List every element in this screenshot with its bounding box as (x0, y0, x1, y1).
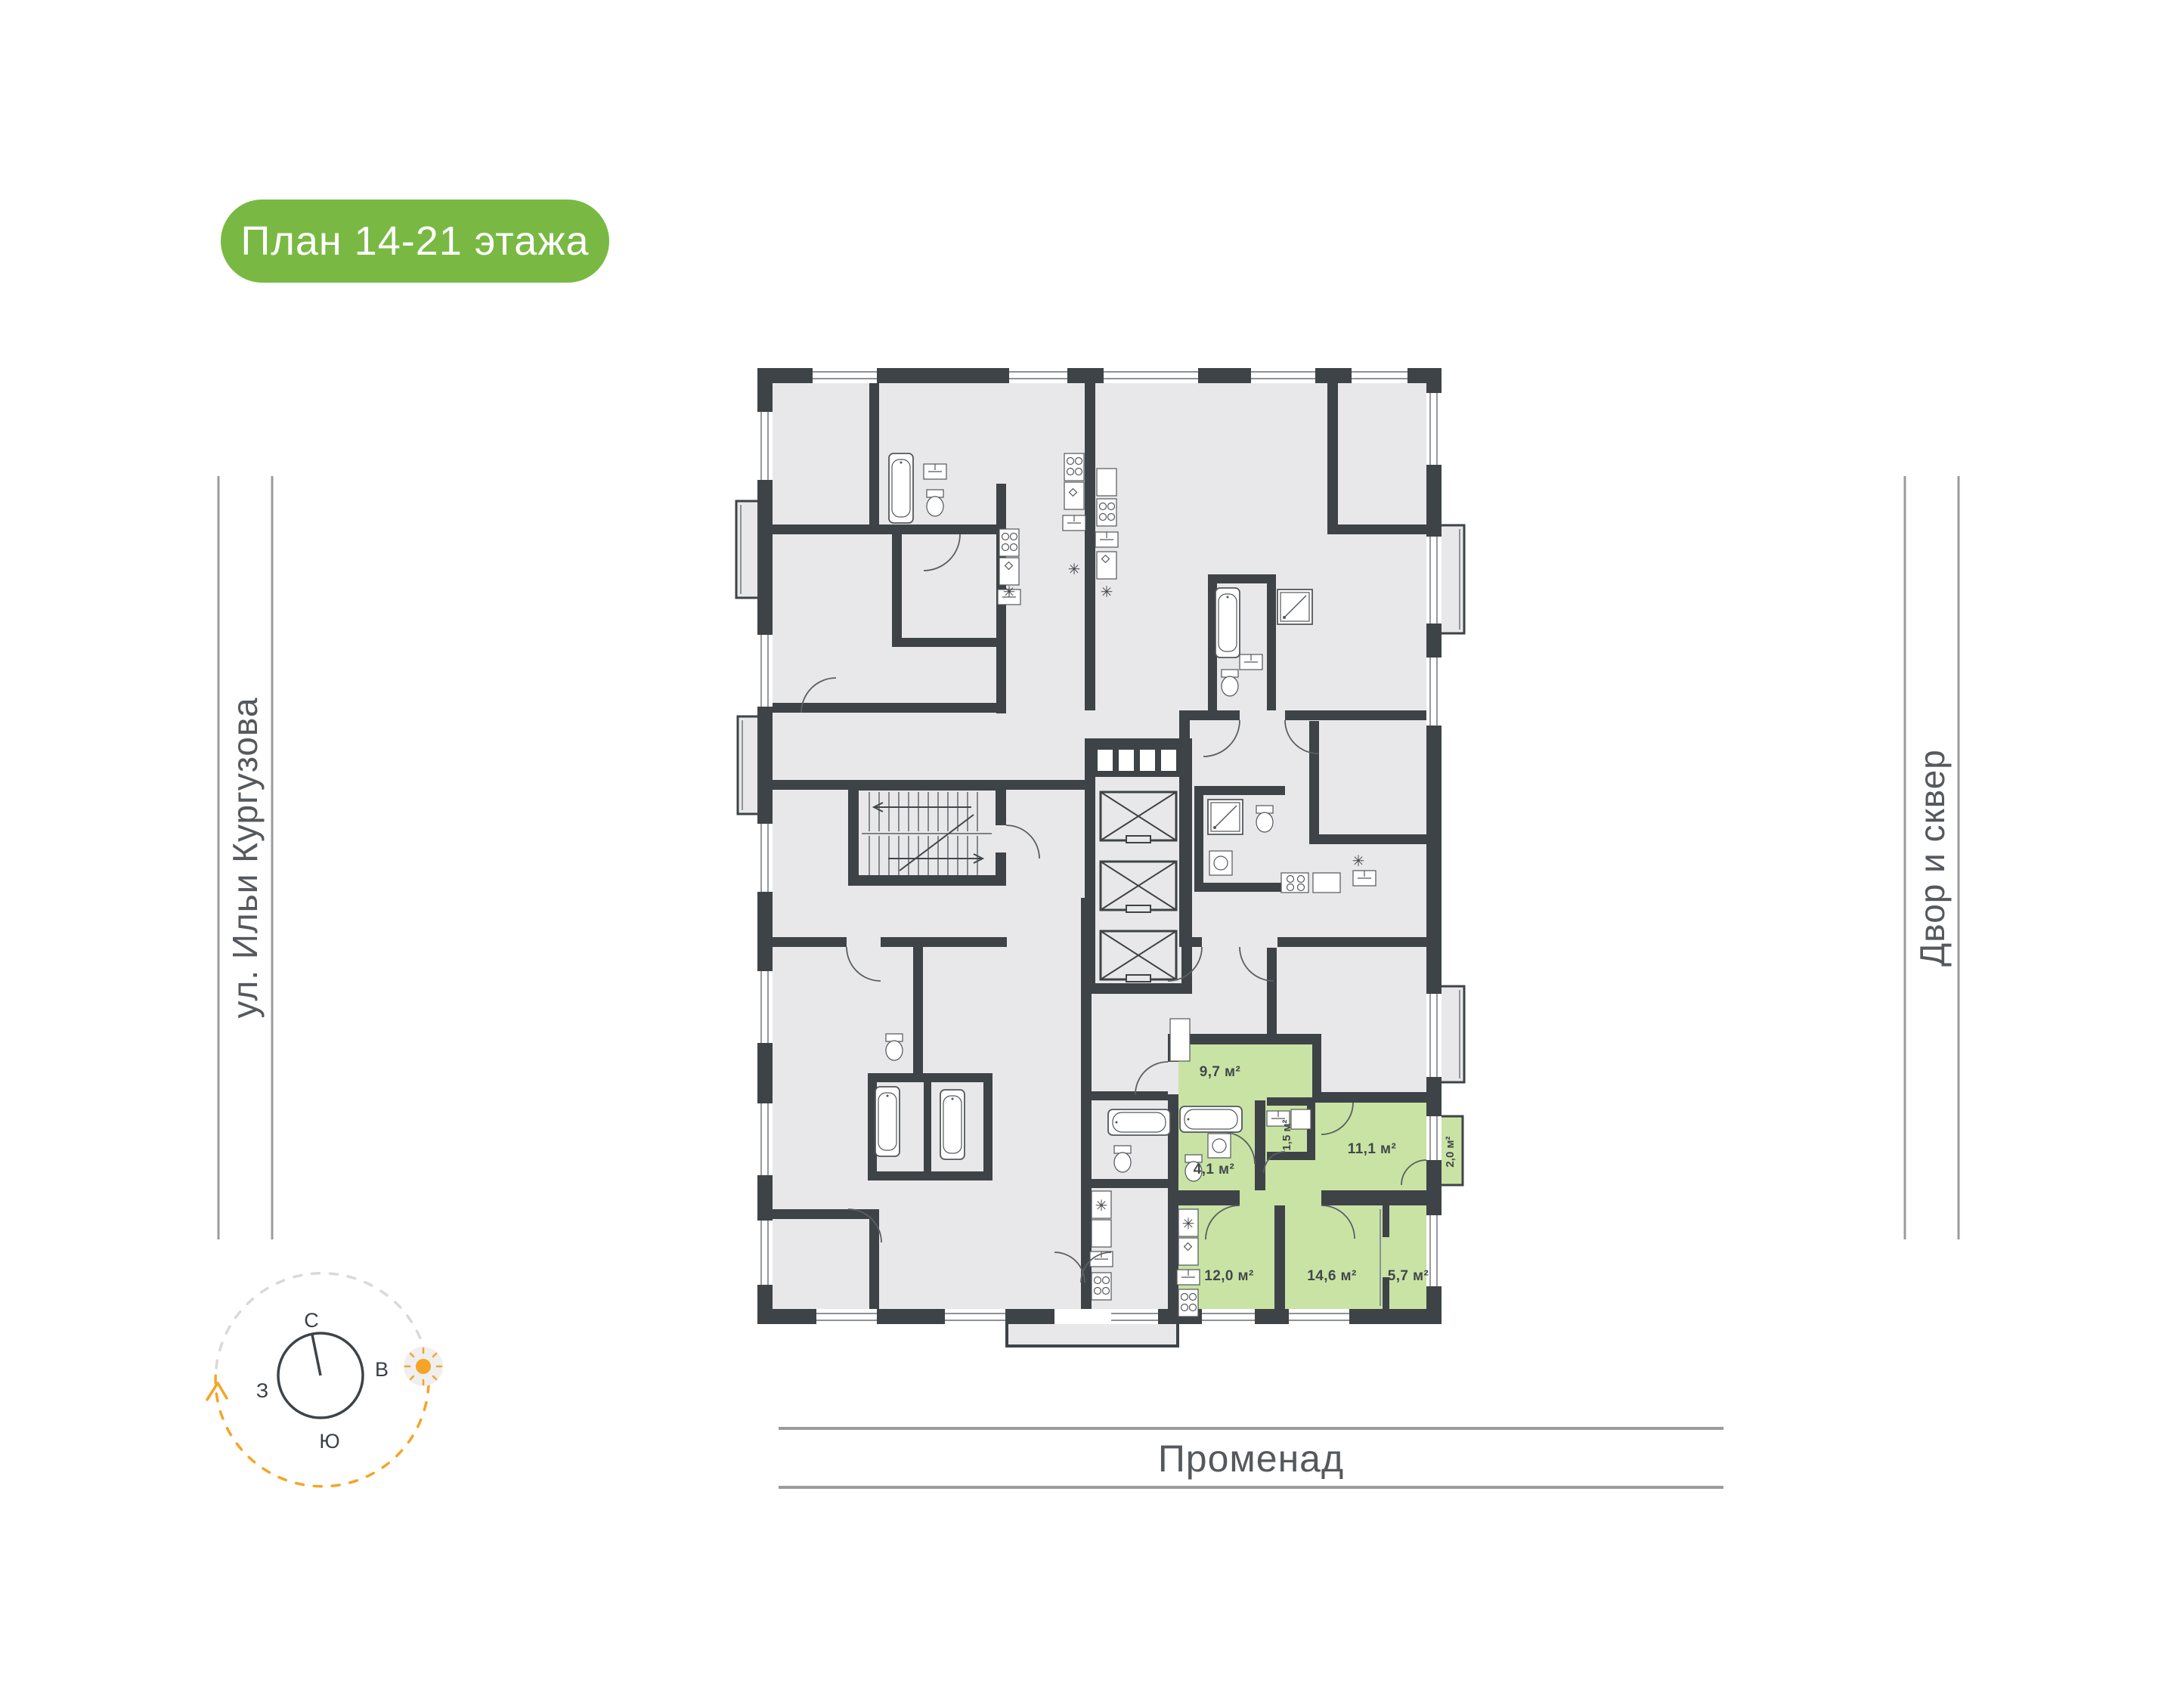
sun-icon (416, 1359, 431, 1374)
bathtub-icon (1215, 588, 1240, 658)
street-left-label: ул. Ильи Кургузова (225, 697, 265, 1018)
bathtub-icon (1180, 1106, 1242, 1132)
toilet-icon (1114, 1146, 1131, 1172)
elevator-shaft (1101, 862, 1176, 912)
toilet-icon (1256, 806, 1273, 832)
toilet-icon (927, 490, 943, 516)
compass-east: В (375, 1358, 389, 1381)
svg-text:✳: ✳ (1068, 562, 1081, 578)
sink-icon (1177, 1270, 1200, 1285)
right-balconies (1440, 525, 1464, 1082)
room-label-bathroom: 4,1 м² (1194, 1162, 1234, 1177)
street-right-label: Двор и сквер (1912, 749, 1952, 967)
room-label-kitchen: 12,0 м² (1204, 1268, 1253, 1284)
room-label-balcony: 2,0 м² (1444, 1136, 1457, 1167)
vent-duct (1170, 1019, 1190, 1061)
washing-machine-icon (1208, 1134, 1231, 1158)
toilet-icon (886, 1034, 903, 1060)
sink-icon (1240, 654, 1262, 670)
shower-icon (1208, 800, 1243, 834)
street-bottom-label: Променад (1158, 1437, 1344, 1480)
entrance-vestibule (1007, 1324, 1178, 1346)
sink-icon (1063, 515, 1085, 531)
street-left: ул. Ильи Кургузова (218, 476, 272, 1239)
badge-label: План 14-21 этажа (241, 218, 590, 264)
room-label-hall: 9,7 м² (1200, 1064, 1240, 1080)
bathtub-icon (875, 1087, 900, 1156)
toilet-icon (1222, 670, 1238, 696)
stove-icon (1178, 1289, 1198, 1317)
sink-icon (1095, 532, 1118, 547)
stove-icon (1064, 453, 1084, 481)
left-bay-windows (736, 501, 759, 814)
stove-icon (1092, 1273, 1111, 1300)
shower-icon (1277, 589, 1312, 624)
room-label-wc: 1,5 м² (1280, 1119, 1293, 1150)
stove-icon (1281, 873, 1308, 893)
compass: С В З Ю (207, 1273, 443, 1487)
room-label-bedroom: 11,1 м² (1348, 1141, 1396, 1157)
sink-icon (1353, 871, 1376, 886)
sink-icon (924, 464, 946, 479)
page-canvas: План 14-21 этажа ул. Ильи Кургузова Двор… (0, 0, 2177, 1708)
svg-text:✳: ✳ (1352, 853, 1365, 870)
vent-slots (1090, 744, 1187, 777)
stove-icon (999, 529, 1019, 556)
floor-plan: ✳ ✳ ✳ ✳ ✳ ✳ (736, 368, 1464, 1346)
svg-text:✳: ✳ (1182, 1216, 1195, 1233)
svg-text:✳: ✳ (1003, 584, 1016, 601)
elevator-shaft (1101, 931, 1176, 982)
compass-west: З (256, 1379, 268, 1402)
room-label-living: 14,6 м² (1307, 1268, 1356, 1284)
floor-badge: План 14-21 этажа (221, 200, 609, 283)
street-bottom: Променад (779, 1428, 1723, 1487)
washing-machine-icon (1209, 851, 1232, 875)
svg-text:✳: ✳ (1101, 584, 1113, 601)
svg-text:✳: ✳ (1095, 1198, 1108, 1214)
compass-south: Ю (319, 1430, 339, 1453)
room-label-room: 5,7 м² (1388, 1268, 1429, 1284)
bathtub-icon (1108, 1109, 1170, 1135)
bathtub-icon (940, 1090, 965, 1159)
towel-dryer-icon (1291, 1109, 1311, 1129)
bathtub-icon (889, 453, 913, 523)
elevator-shaft (1101, 792, 1176, 843)
compass-north: С (304, 1309, 319, 1332)
stove-icon (1097, 499, 1116, 526)
street-right: Двор и сквер (1905, 476, 1959, 1239)
